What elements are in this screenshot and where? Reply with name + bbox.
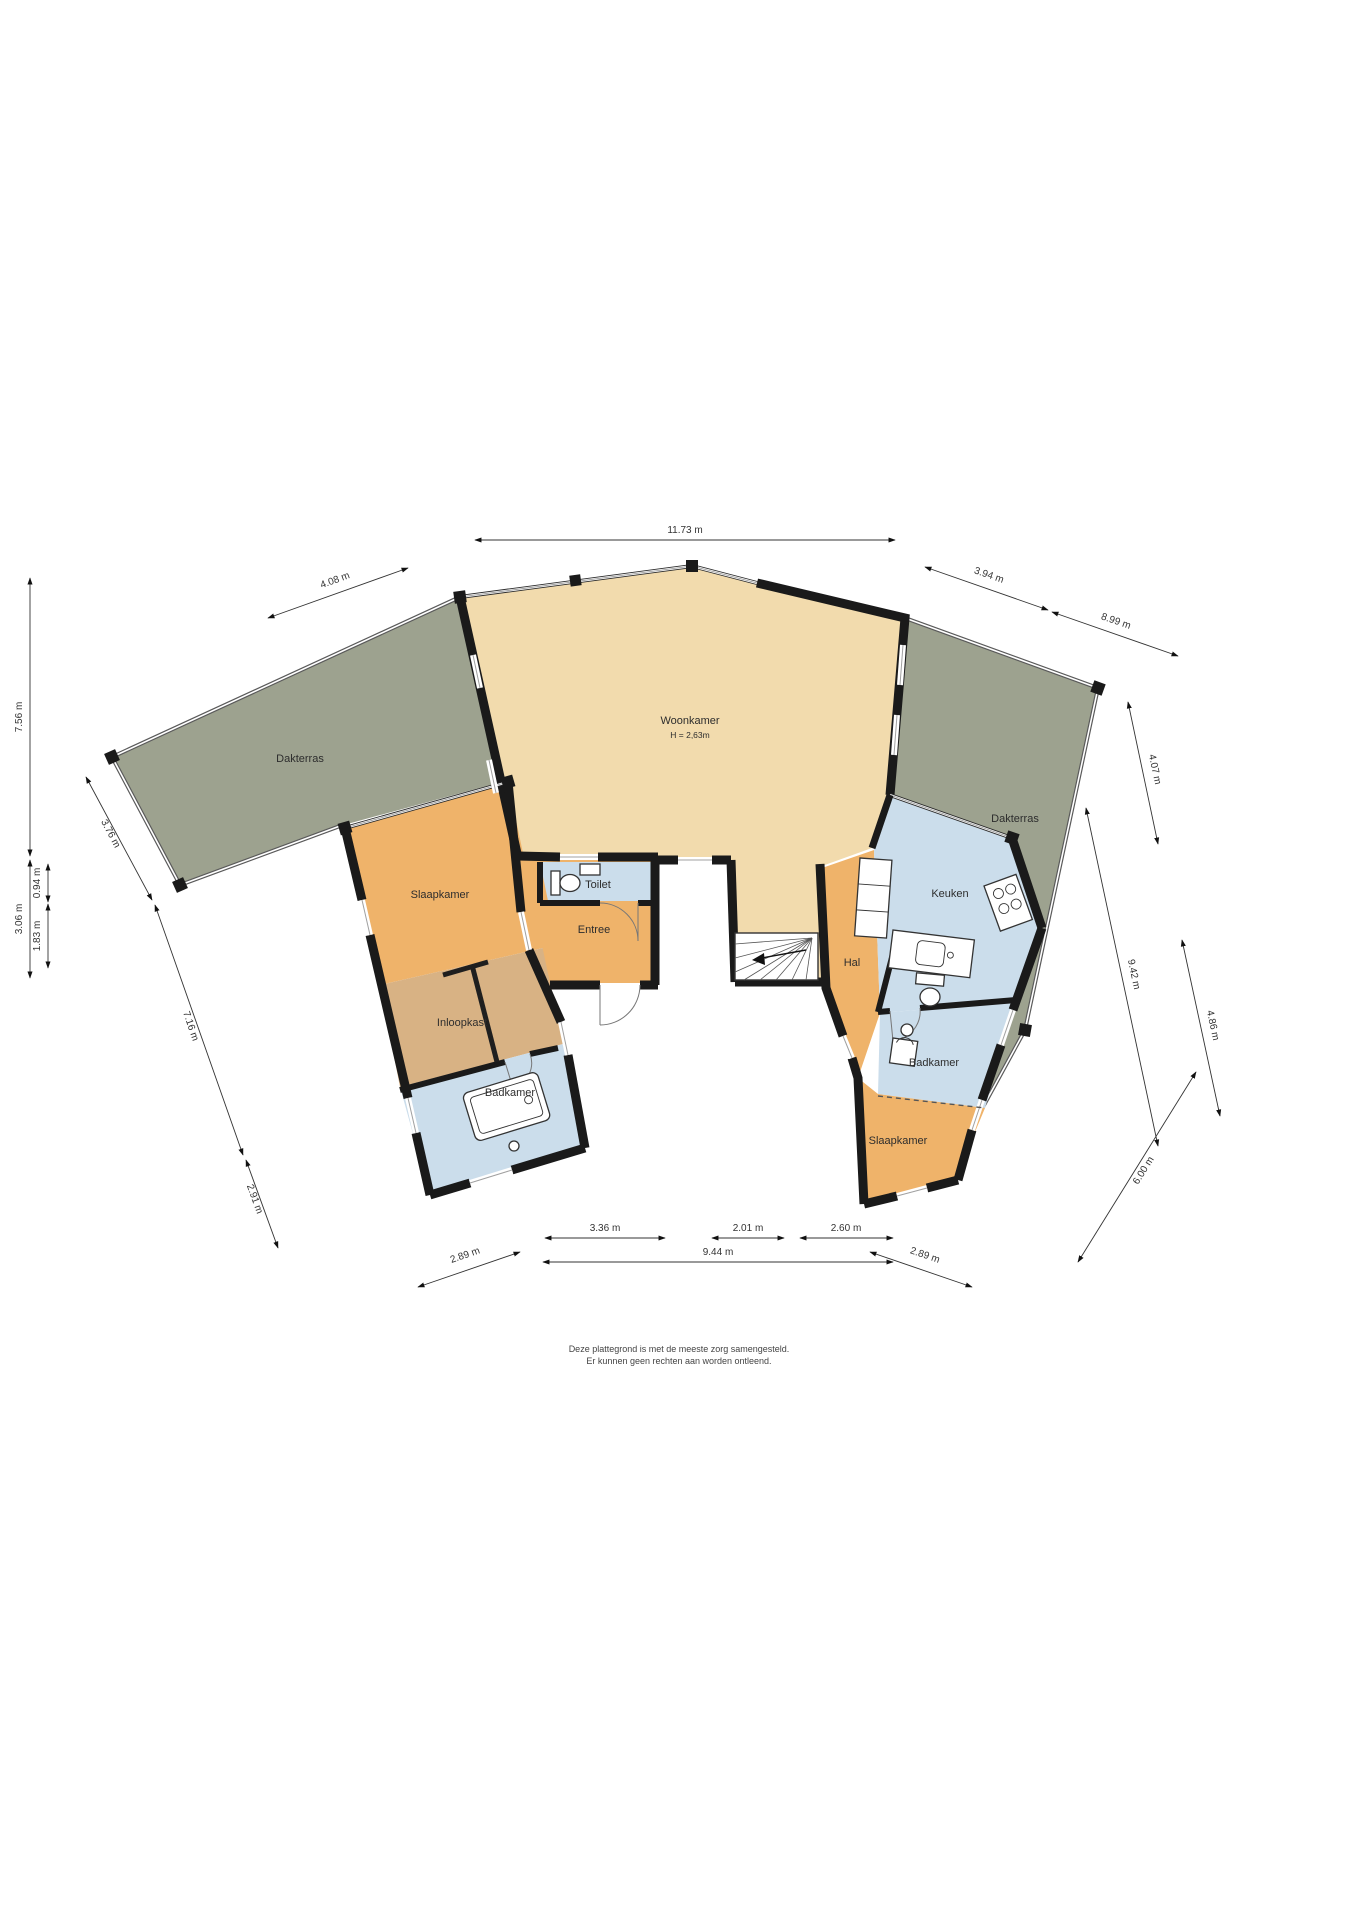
dim-line <box>155 905 243 1155</box>
label-badkamer-right: Badkamer <box>909 1057 959 1069</box>
dim-label: 8.99 m <box>1100 611 1132 631</box>
label-toilet: Toilet <box>585 879 611 891</box>
dim-label: 4.07 m <box>1146 753 1163 785</box>
bathroom-drain <box>901 1024 913 1036</box>
label-badkamer-left: Badkamer <box>485 1087 535 1099</box>
floorplan-canvas: 11.73 m 4.08 m 3.94 m 8.99 m 7.56 m 3.06… <box>0 0 1358 1920</box>
label-slaapkamer-left: Slaapkamer <box>411 889 470 901</box>
label-woonkamer: Woonkamer <box>660 715 719 727</box>
dim-line <box>1078 1072 1196 1262</box>
label-slaapkamer-right: Slaapkamer <box>869 1135 928 1147</box>
wall-post <box>686 560 698 572</box>
dim-label: 0.94 m <box>32 868 43 899</box>
disclaimer-line2: Er kunnen geen rechten aan worden ontlee… <box>586 1356 771 1366</box>
dim-label: 9.44 m <box>703 1247 734 1258</box>
toilet-bowl <box>920 988 940 1006</box>
label-woonkamer-height: H = 2,63m <box>670 730 709 740</box>
dim-label: 4.08 m <box>319 570 351 591</box>
dim-label: 11.73 m <box>667 525 702 536</box>
railing-post <box>1018 1023 1032 1037</box>
toilet-bowl <box>560 875 580 892</box>
dim-label: 3.94 m <box>973 565 1005 585</box>
dim-label: 3.36 m <box>590 1223 621 1234</box>
wall-badkamer-right-top <box>878 1011 890 1012</box>
disclaimer-line1: Deze plattegrond is met de meeste zorg s… <box>569 1344 790 1354</box>
toilet-cistern <box>551 871 560 895</box>
label-hal: Hal <box>844 957 861 969</box>
wall-entree-top <box>518 856 560 857</box>
toilet-sink <box>580 864 600 875</box>
label-entree: Entree <box>578 924 610 936</box>
shower-drain <box>509 1141 519 1151</box>
toilet-cistern <box>916 973 945 986</box>
label-keuken: Keuken <box>931 888 968 900</box>
stairs <box>735 933 818 980</box>
label-dakterras-right: Dakterras <box>991 813 1039 825</box>
floorplan-page: 11.73 m 4.08 m 3.94 m 8.99 m 7.56 m 3.06… <box>0 0 1358 1920</box>
disclaimer: Deze plattegrond is met de meeste zorg s… <box>569 1344 790 1366</box>
dim-label: 2.89 m <box>909 1245 941 1265</box>
dim-line <box>1086 808 1158 1146</box>
kitchen-cabinets <box>855 858 892 938</box>
dim-label: 2.01 m <box>733 1223 764 1234</box>
dim-label: 2.60 m <box>831 1223 862 1234</box>
window <box>900 645 903 685</box>
dim-label: 7.56 m <box>14 702 25 733</box>
label-inloopkast: Inloopkast <box>437 1017 487 1029</box>
wall-post <box>569 574 581 586</box>
dim-label: 1.83 m <box>32 921 43 952</box>
dim-label: 9.42 m <box>1125 958 1142 990</box>
window <box>894 715 897 755</box>
door-entree <box>600 985 640 1025</box>
dim-label: 3.76 m <box>98 818 122 850</box>
dim-label: 2.89 m <box>449 1245 481 1265</box>
dim-label: 2.91 m <box>244 1183 265 1215</box>
label-dakterras-left: Dakterras <box>276 753 324 765</box>
dim-label: 4.86 m <box>1204 1009 1221 1041</box>
dim-label: 3.06 m <box>14 904 25 935</box>
